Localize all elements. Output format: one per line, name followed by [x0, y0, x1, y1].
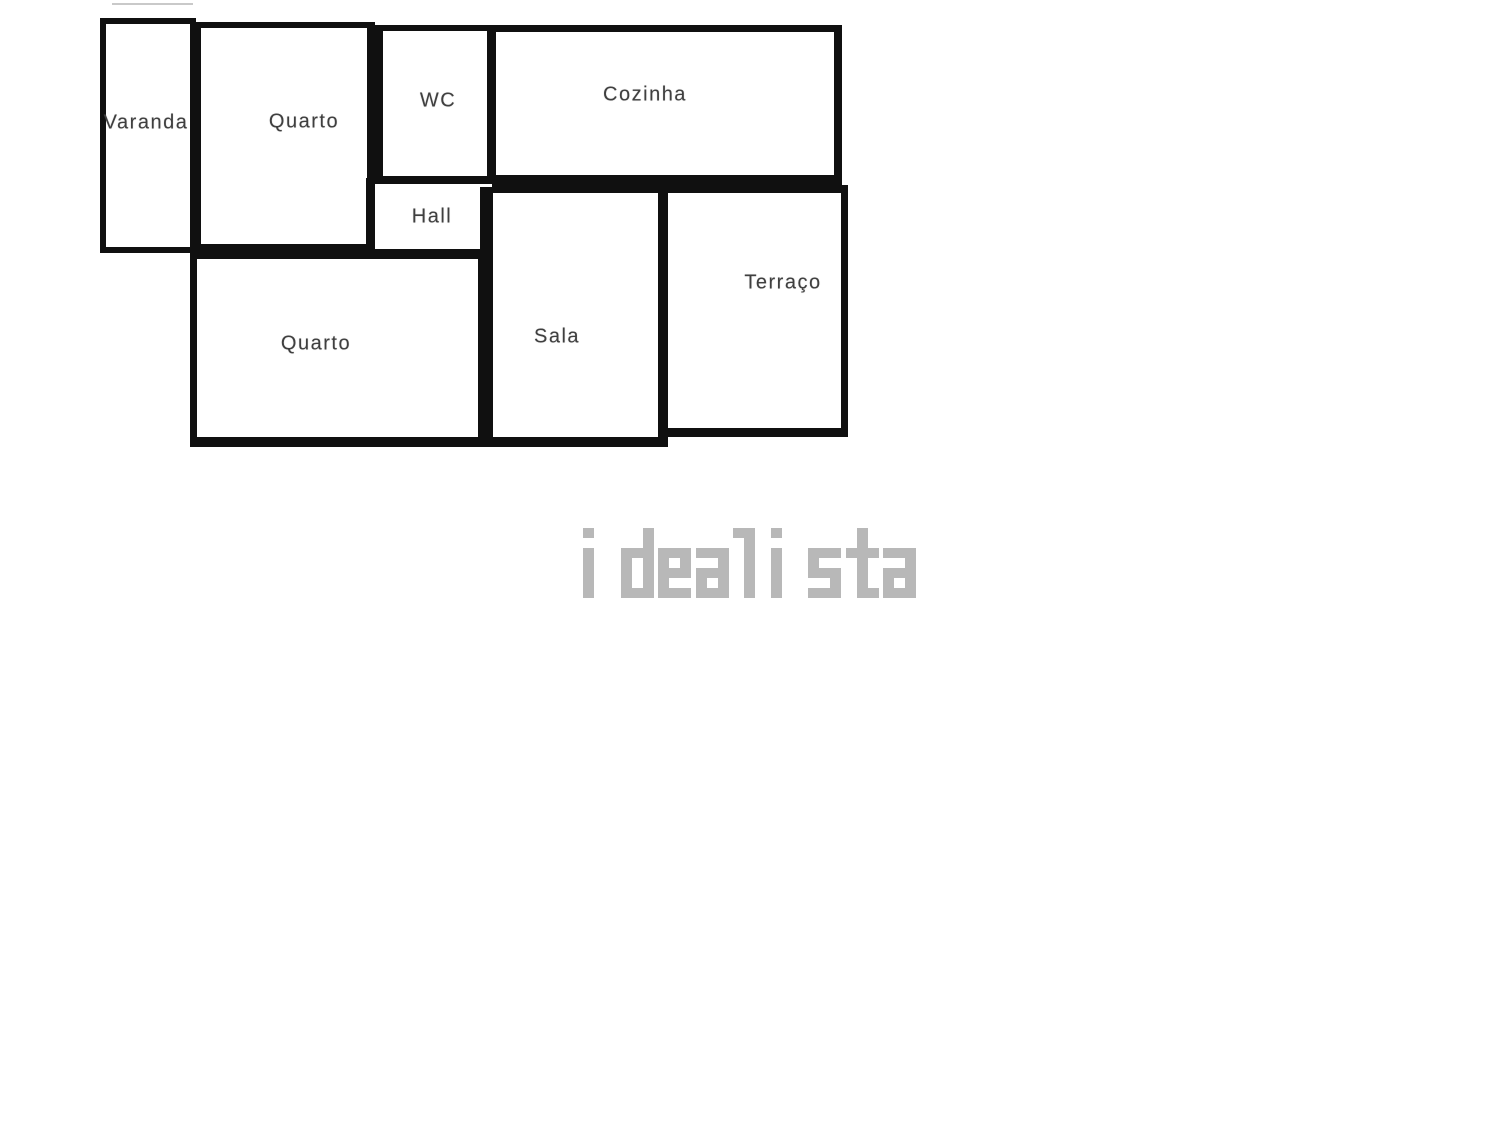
watermark-pixel: [658, 588, 669, 598]
watermark-pixel: [632, 548, 643, 558]
watermark-pixel: [718, 588, 729, 598]
room-label-hall: Hall: [412, 206, 452, 229]
watermark-pixel: [707, 588, 718, 598]
watermark-pixel: [905, 548, 916, 558]
watermark-pixel: [643, 538, 654, 548]
watermark-pixel: [643, 588, 654, 598]
watermark-pixel: [894, 548, 905, 558]
watermark-pixel: [868, 548, 879, 558]
scan-artifact-line: [112, 3, 193, 5]
watermark-pixel: [744, 538, 755, 548]
watermark-pixel: [894, 568, 905, 578]
watermark-pixel: [771, 558, 782, 568]
watermark-pixel: [707, 548, 718, 558]
watermark-pixel: [857, 548, 868, 558]
watermark-pixel: [883, 588, 894, 598]
watermark-pixel: [583, 588, 594, 598]
watermark-pixel: [669, 548, 680, 558]
floorplan-image: VarandaQuartoWCCozinhaHallQuartoSalaTerr…: [0, 0, 1500, 1125]
watermark-pixel: [905, 588, 916, 598]
room-varanda: [100, 18, 196, 253]
watermark-pixel: [830, 578, 841, 588]
watermark-pixel: [621, 548, 632, 558]
room-label-wc: WC: [420, 90, 456, 113]
room-sala: [480, 187, 668, 447]
watermark-pixel: [680, 588, 691, 598]
watermark-pixel: [808, 548, 819, 558]
watermark-pixel: [868, 588, 879, 598]
watermark-pixel: [707, 568, 718, 578]
room-label-cozinha: Cozinha: [603, 84, 687, 107]
room-label-varanda: Varanda: [104, 112, 189, 135]
watermark-pixel: [696, 548, 707, 558]
watermark-pixel: [632, 588, 643, 598]
watermark-pixel: [718, 548, 729, 558]
watermark-pixel: [808, 558, 819, 568]
watermark-pixel: [808, 568, 819, 578]
watermark-pixel: [905, 568, 916, 578]
watermark-pixel: [658, 568, 669, 578]
room-quarto-1: [195, 22, 375, 255]
watermark-pixel: [905, 578, 916, 588]
room-terraco: [658, 185, 848, 437]
watermark-pixel: [643, 528, 654, 538]
watermark-pixel: [744, 558, 755, 568]
watermark-pixel: [905, 558, 916, 568]
watermark-pixel: [857, 568, 868, 578]
watermark-pixel: [857, 528, 868, 538]
watermark-pixel: [643, 558, 654, 568]
watermark-pixel: [883, 578, 894, 588]
watermark-pixel: [583, 528, 594, 538]
watermark-pixel: [733, 528, 744, 538]
watermark-pixel: [744, 578, 755, 588]
watermark-pixel: [744, 528, 755, 538]
watermark-pixel: [718, 558, 729, 568]
watermark-pixel: [830, 588, 841, 598]
watermark-pixel: [583, 578, 594, 588]
watermark-pixel: [857, 558, 868, 568]
watermark-pixel: [621, 588, 632, 598]
watermark-pixel: [621, 568, 632, 578]
watermark-pixel: [680, 558, 691, 568]
watermark-pixel: [669, 568, 680, 578]
watermark-pixel: [771, 568, 782, 578]
watermark-pixel: [830, 568, 841, 578]
watermark-pixel: [744, 548, 755, 558]
watermark-pixel: [808, 588, 819, 598]
room-label-quarto-1: Quarto: [269, 111, 339, 134]
watermark-pixel: [819, 588, 830, 598]
watermark-pixel: [680, 548, 691, 558]
watermark-pixel: [583, 548, 594, 558]
watermark-pixel: [771, 588, 782, 598]
watermark-pixel: [583, 558, 594, 568]
room-label-quarto-2: Quarto: [281, 333, 351, 356]
watermark-pixel: [658, 548, 669, 558]
watermark-pixel: [680, 568, 691, 578]
watermark-pixel: [846, 548, 857, 558]
watermark-pixel: [718, 568, 729, 578]
watermark-pixel: [643, 578, 654, 588]
watermark-pixel: [819, 568, 830, 578]
room-label-sala: Sala: [534, 326, 580, 349]
watermark-pixel: [883, 548, 894, 558]
watermark-pixel: [894, 588, 905, 598]
watermark-pixel: [718, 578, 729, 588]
watermark-pixel: [621, 578, 632, 588]
watermark-pixel: [830, 548, 841, 558]
watermark-pixel: [669, 588, 680, 598]
watermark-pixel: [658, 558, 669, 568]
watermark-pixel: [883, 568, 894, 578]
watermark-pixel: [771, 578, 782, 588]
watermark-pixel: [744, 588, 755, 598]
watermark-pixel: [643, 548, 654, 558]
watermark-pixel: [857, 538, 868, 548]
watermark-pixel: [621, 558, 632, 568]
watermark-pixel: [771, 548, 782, 558]
watermark-pixel: [696, 568, 707, 578]
watermark-pixel: [819, 548, 830, 558]
watermark-pixel: [771, 528, 782, 538]
watermark-pixel: [696, 588, 707, 598]
watermark-pixel: [643, 568, 654, 578]
watermark-pixel: [857, 578, 868, 588]
watermark-pixel: [857, 588, 868, 598]
watermark-pixel: [583, 568, 594, 578]
room-label-terraco: Terraço: [744, 272, 821, 295]
watermark-pixel: [658, 578, 669, 588]
watermark-pixel: [696, 578, 707, 588]
watermark-pixel: [744, 568, 755, 578]
